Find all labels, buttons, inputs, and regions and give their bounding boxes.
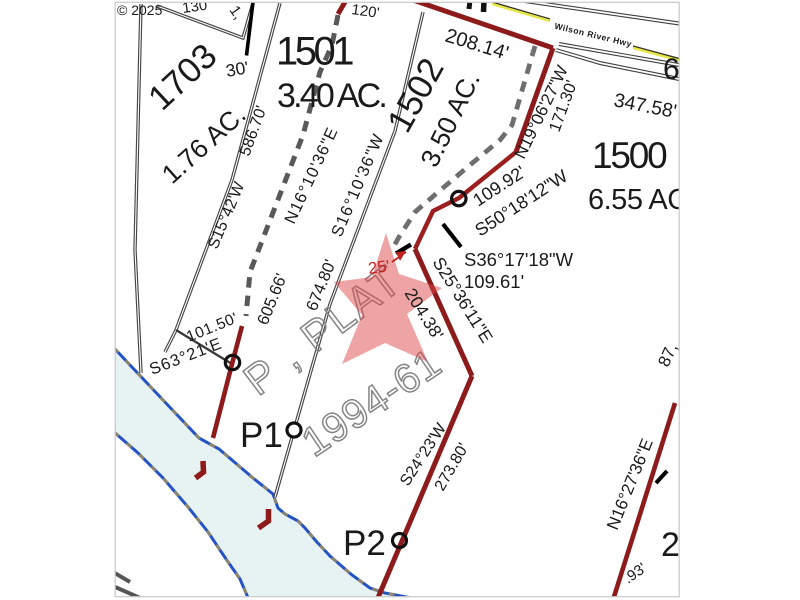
svg-text:6: 6 [663,53,680,86]
svg-text:P2: P2 [343,524,386,563]
svg-text:© 2025: © 2025 [117,2,163,18]
svg-text:1500: 1500 [592,135,667,176]
svg-text:S36°17'18"W: S36°17'18"W [464,249,574,270]
svg-text:30': 30' [224,57,250,81]
svg-text:25': 25' [367,257,391,278]
svg-text:1501: 1501 [276,30,353,74]
svg-text:2: 2 [661,526,680,564]
svg-text:P1: P1 [240,416,283,455]
svg-text:109.61': 109.61' [464,271,524,292]
svg-text:3.40 AC.: 3.40 AC. [277,77,385,115]
